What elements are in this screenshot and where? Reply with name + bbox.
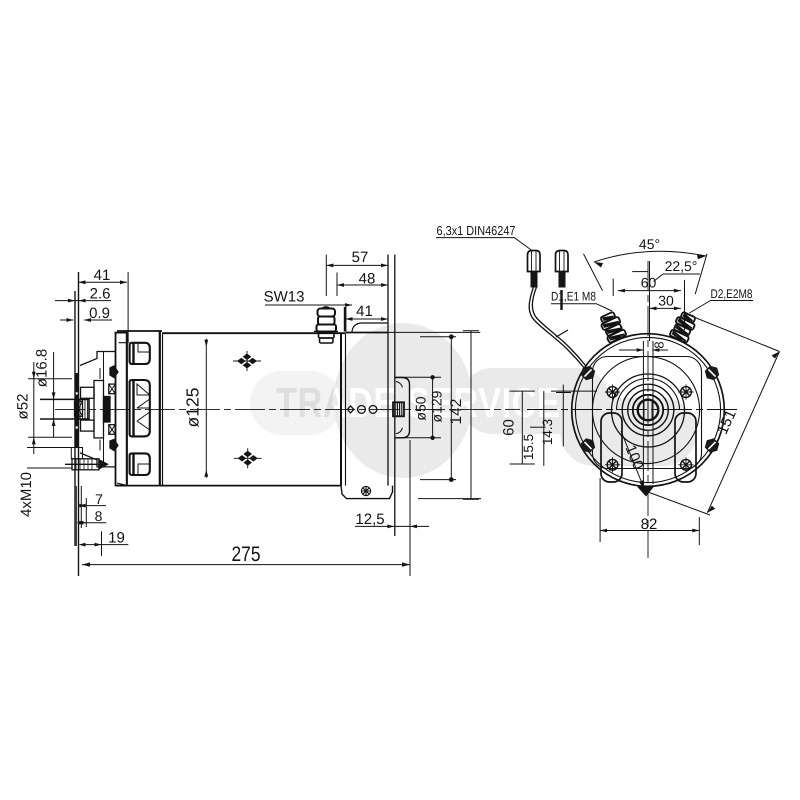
svg-text:275: 275 (232, 543, 261, 566)
svg-text:0.9: 0.9 (89, 305, 110, 322)
svg-text:8: 8 (652, 341, 667, 348)
svg-text:57: 57 (352, 249, 369, 266)
svg-text:SW13: SW13 (264, 289, 305, 306)
svg-text:82: 82 (641, 516, 658, 533)
svg-text:48: 48 (359, 271, 376, 288)
svg-text:2.6: 2.6 (90, 286, 111, 303)
svg-text:4xM10: 4xM10 (18, 472, 35, 517)
svg-text:7: 7 (95, 491, 103, 507)
svg-text:ø52: ø52 (15, 394, 32, 420)
svg-text:41: 41 (94, 267, 111, 284)
svg-text:12,5: 12,5 (355, 511, 384, 528)
svg-text:45°: 45° (639, 236, 660, 252)
svg-text:6,3x1 DIN46247: 6,3x1 DIN46247 (437, 223, 516, 238)
svg-text:22,5°: 22,5° (665, 258, 698, 274)
svg-text:ø16.8: ø16.8 (34, 349, 51, 387)
svg-text:60: 60 (501, 419, 518, 436)
svg-text:D2,E2M8: D2,E2M8 (711, 287, 753, 301)
svg-text:142: 142 (448, 399, 465, 425)
svg-text:ø50: ø50 (413, 396, 429, 420)
svg-text:14.3: 14.3 (540, 419, 555, 445)
svg-text:19: 19 (108, 530, 125, 547)
svg-text:ø125: ø125 (183, 388, 203, 428)
svg-text:41: 41 (356, 303, 373, 320)
svg-text:8: 8 (95, 508, 103, 524)
svg-text:ø129: ø129 (429, 390, 445, 422)
svg-text:30: 30 (658, 293, 674, 309)
svg-text:D1,E1 M8: D1,E1 M8 (551, 290, 596, 304)
svg-text:60: 60 (641, 275, 657, 291)
svg-text:15.5: 15.5 (521, 434, 536, 460)
